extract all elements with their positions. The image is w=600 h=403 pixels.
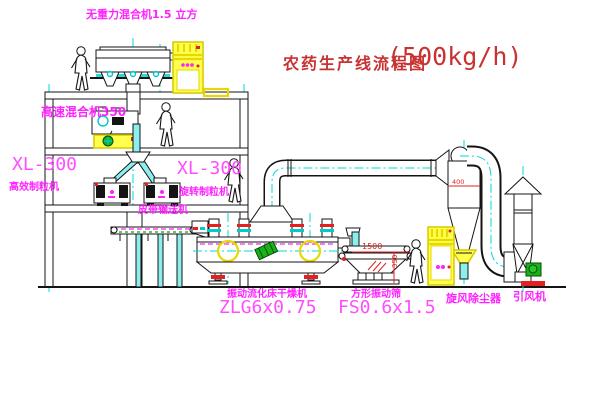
dimension-screen-height: 350 <box>392 255 399 268</box>
flow-diagram-page: 农药生产线流程图 (500kg/h) 无重力混合机1.5 立方 高速混合机350… <box>0 0 600 403</box>
label-granulator-left-model: XL-300 <box>12 156 77 174</box>
vibrating-screen-drawing <box>339 228 413 284</box>
fluid-bed-dryer-drawing <box>192 213 350 284</box>
person-figure <box>407 240 426 283</box>
control-cabinet-top <box>173 42 203 93</box>
label-high-speed-mixer: 高速混合机350 <box>41 106 126 118</box>
label-screen-model: FS0.6x1.5 <box>338 299 436 317</box>
dryer-legs <box>209 273 320 284</box>
label-belt-conveyor: 皮带输送机 <box>138 206 188 216</box>
label-granulator-left-name: 高效制粒机 <box>9 183 59 193</box>
diagram-title-capacity: (500kg/h) <box>387 42 522 71</box>
label-granulator-right-name: 旋转制粒机 <box>179 188 229 198</box>
person-figure <box>157 103 176 146</box>
person-figure <box>72 47 91 90</box>
dimension-screen-length: 1500 <box>362 243 382 251</box>
dimension-cyclone-inlet: 400 <box>452 179 464 186</box>
label-cyclone: 旋风除尘器 <box>446 293 501 304</box>
label-gravity-mixer: 无重力混合机1.5 立方 <box>86 9 197 20</box>
label-fan: 引风机 <box>513 291 546 302</box>
granulator-left-drawing <box>94 178 130 206</box>
control-cabinet-bottom <box>428 227 454 285</box>
dryer-exhaust-duct <box>250 150 449 222</box>
granulator-right-drawing <box>144 178 180 206</box>
belt-conveyor-drawing <box>111 227 208 287</box>
label-dryer-model: ZLG6x0.75 <box>219 299 317 317</box>
label-granulator-right-model: XL-300 <box>177 160 242 178</box>
